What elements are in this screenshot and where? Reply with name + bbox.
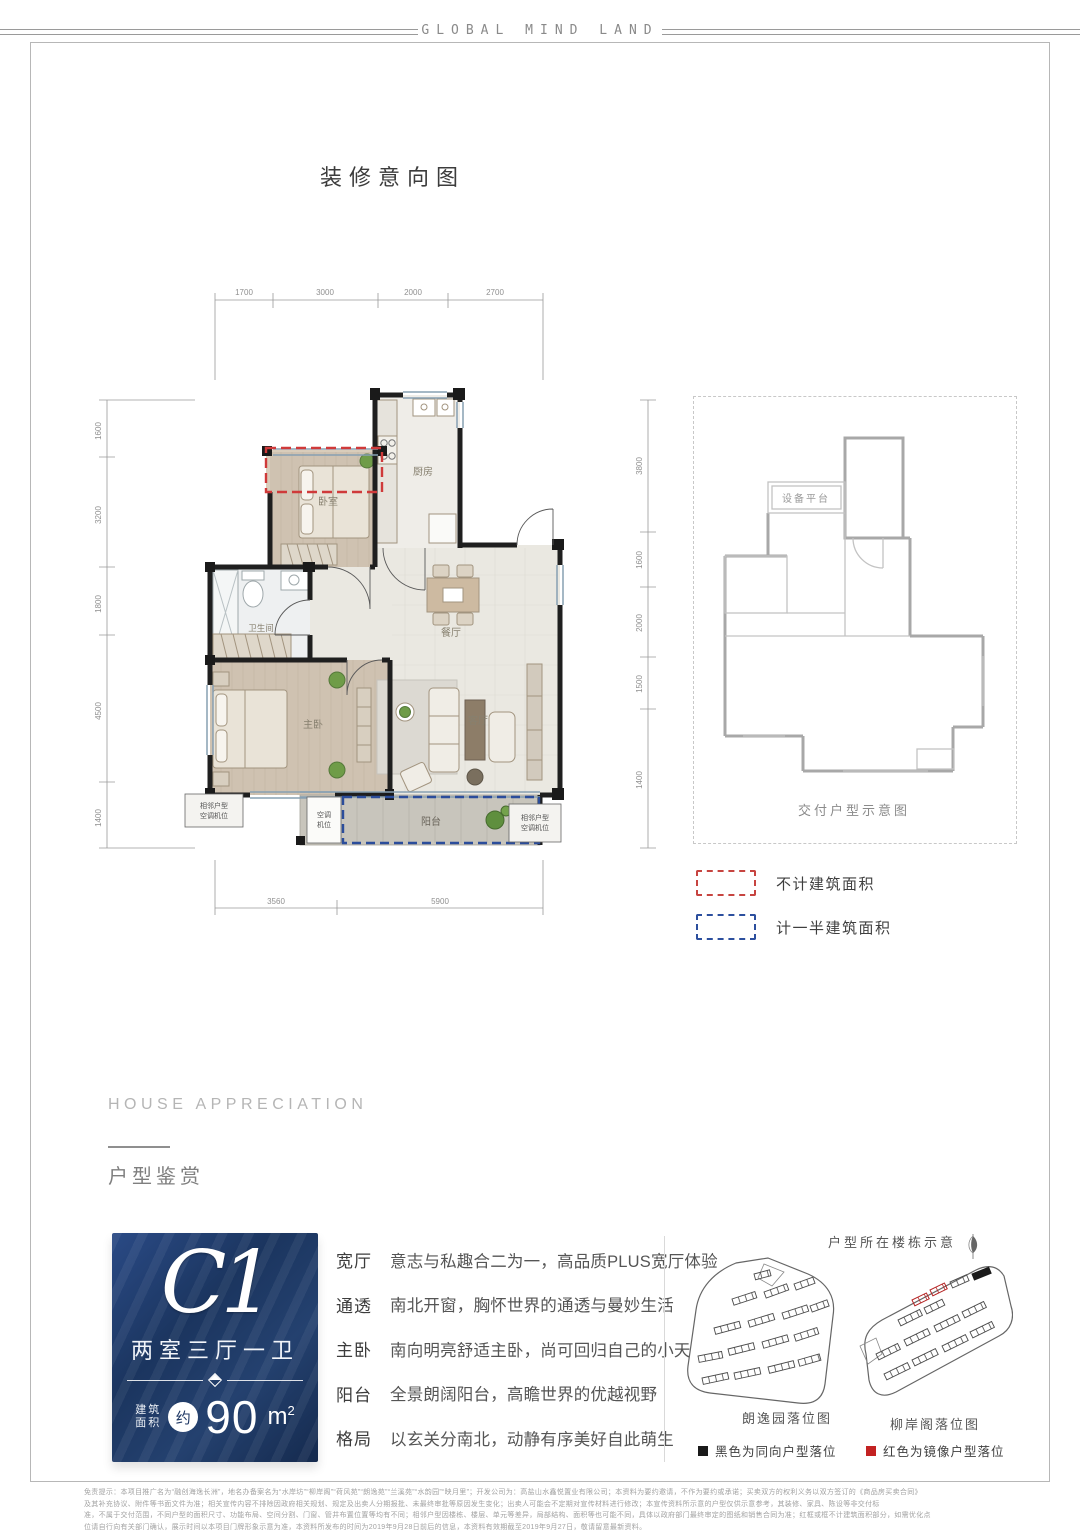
red-square-icon: [866, 1446, 876, 1456]
svg-text:3800: 3800: [635, 457, 644, 475]
room-label-bathroom: 卫生间: [248, 623, 274, 633]
ac-left-label: 相邻户型: [200, 801, 228, 810]
unit-layout: 两室三厅一卫: [131, 1333, 299, 1365]
feature-list: 宽厅 意志与私趣合二为一，高品质PLUS宽厅体验 通透 南北开窗，胸怀世界的通透…: [336, 1246, 656, 1469]
room-label-master: 主卧: [303, 718, 323, 731]
platform-label: 设备平台: [782, 492, 830, 505]
svg-text:1500: 1500: [635, 675, 644, 693]
delivery-plan-svg: 设备平台: [693, 396, 1015, 842]
feature-row: 通透 南北开窗，胸怀世界的通透与曼妙生活: [336, 1291, 656, 1318]
compass-icon: [964, 1232, 982, 1260]
svg-text:5900: 5900: [431, 897, 449, 906]
svg-text:1800: 1800: [94, 595, 103, 613]
section-divider: [108, 1146, 170, 1148]
map-legend-red: 红色为镜像户型落位: [866, 1441, 1005, 1460]
disclaimer: 免责提示：本项目推广名为“融创海逸长洲”，地名办备案名为“水岸坊”“柳岸阁”“荷…: [84, 1487, 996, 1533]
decorated-floor-plan: 相邻户型 空调机位 空调 机位 相邻户型 空调机位 卧室 厨房 卫生间 主卧 餐…: [85, 260, 670, 950]
svg-text:2000: 2000: [635, 614, 644, 632]
section-title-en: HOUSE APPRECIATION: [108, 1096, 367, 1114]
diamond-icon: [208, 1373, 222, 1387]
black-square-icon: [698, 1446, 708, 1456]
svg-text:1600: 1600: [94, 422, 103, 440]
feature-row: 阳台 全景朗阔阳台，高瞻世界的优越视野: [336, 1380, 656, 1407]
building-maps-title: 户型所在楼栋示意: [828, 1232, 956, 1251]
svg-text:1400: 1400: [635, 771, 644, 789]
svg-text:空调机位: 空调机位: [521, 823, 549, 832]
room-label-kitchen: 厨房: [413, 465, 433, 478]
area-unit: m: [267, 1403, 287, 1430]
svg-text:1700: 1700: [235, 288, 253, 297]
area-prefix-2: 面积: [135, 1417, 161, 1430]
unit-code: C1: [161, 1235, 270, 1331]
card-divider: [127, 1375, 303, 1385]
red-legend-label: 不计建筑面积: [776, 873, 875, 894]
blue-legend-label: 计一半建筑面积: [776, 917, 892, 938]
svg-text:1600: 1600: [635, 551, 644, 569]
legend-row-blue: 计一半建筑面积: [696, 914, 892, 940]
area-value: 90: [205, 1394, 258, 1440]
site-map-langyiyuan: [676, 1252, 846, 1410]
ac-mid-label: 空调: [317, 810, 331, 819]
header-rule-right: [662, 29, 1080, 35]
map-legend-black: 黑色为同向户型落位: [698, 1441, 837, 1460]
svg-text:3200: 3200: [94, 506, 103, 524]
area-prefix-1: 建筑: [135, 1404, 161, 1417]
feature-row: 宽厅 意志与私趣合二为一，高品质PLUS宽厅体验: [336, 1246, 656, 1273]
feature-row: 主卧 南向明亮舒适主卧，尚可回归自己的小天地: [336, 1335, 656, 1362]
room-label-dining: 餐厅: [441, 626, 461, 639]
site-map-liuangé: [848, 1258, 1013, 1410]
header-rule-left: [0, 29, 418, 35]
room-label-bedroom: 卧室: [318, 495, 338, 508]
svg-text:3000: 3000: [316, 288, 334, 297]
svg-text:3560: 3560: [267, 897, 285, 906]
unit-card: C1 两室三厅一卫 建筑 面积 约 90 m2: [112, 1233, 318, 1462]
map2-caption: 柳岸阁落位图: [890, 1414, 980, 1433]
section-title-cn: 户型鉴赏: [108, 1160, 204, 1189]
map1-caption: 朗逸园落位图: [742, 1408, 832, 1427]
svg-text:2000: 2000: [404, 288, 422, 297]
building-maps-title-row: 户型所在楼栋示意: [828, 1232, 982, 1260]
svg-text:机位: 机位: [317, 820, 331, 829]
page-title: 装修意向图: [320, 160, 465, 192]
red-dashed-legend-swatch: [696, 870, 756, 896]
ac-right-label: 相邻户型: [521, 813, 549, 822]
room-label-balcony: 阳台: [421, 815, 441, 828]
vertical-divider: [664, 1236, 665, 1462]
blue-dashed-legend-swatch: [696, 914, 756, 940]
delivery-plan-caption: 交付户型示意图: [693, 800, 1015, 819]
brand-title: GLOBAL MIND LAND: [418, 23, 662, 38]
svg-text:2700: 2700: [486, 288, 504, 297]
legend-row-red: 不计建筑面积: [696, 870, 875, 896]
brochure-page: GLOBAL MIND LAND 装修意向图: [0, 0, 1080, 1536]
svg-text:空调机位: 空调机位: [200, 811, 228, 820]
approx-badge: 约: [168, 1402, 198, 1432]
area-exp: 2: [287, 1403, 294, 1418]
svg-text:1400: 1400: [94, 809, 103, 827]
svg-text:4500: 4500: [94, 702, 103, 720]
room-label-living: 客厅: [468, 714, 488, 727]
feature-row: 格局 以玄关分南北，动静有序美好自此萌生: [336, 1424, 656, 1451]
